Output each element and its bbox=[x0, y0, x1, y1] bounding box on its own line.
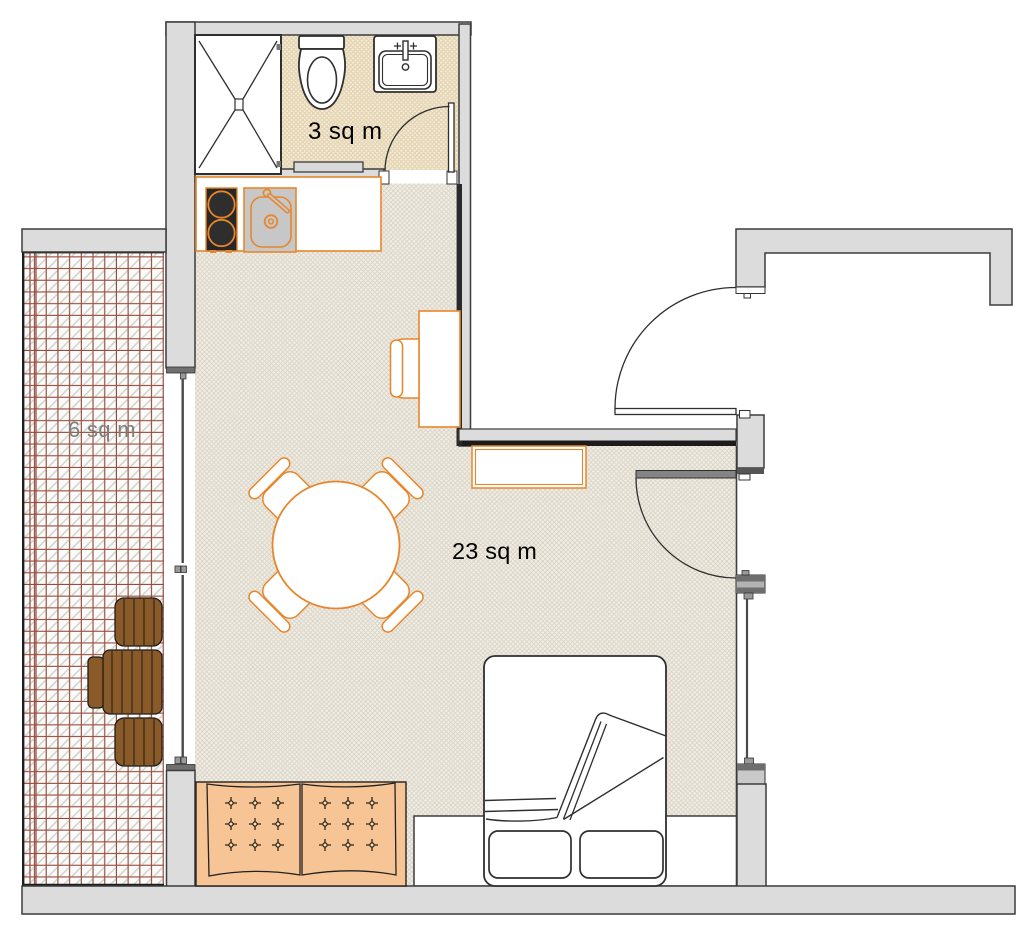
svg-text:6 sq m: 6 sq m bbox=[68, 417, 136, 442]
svg-text:3 sq m: 3 sq m bbox=[308, 118, 382, 145]
svg-text:23 sq m: 23 sq m bbox=[452, 538, 537, 564]
